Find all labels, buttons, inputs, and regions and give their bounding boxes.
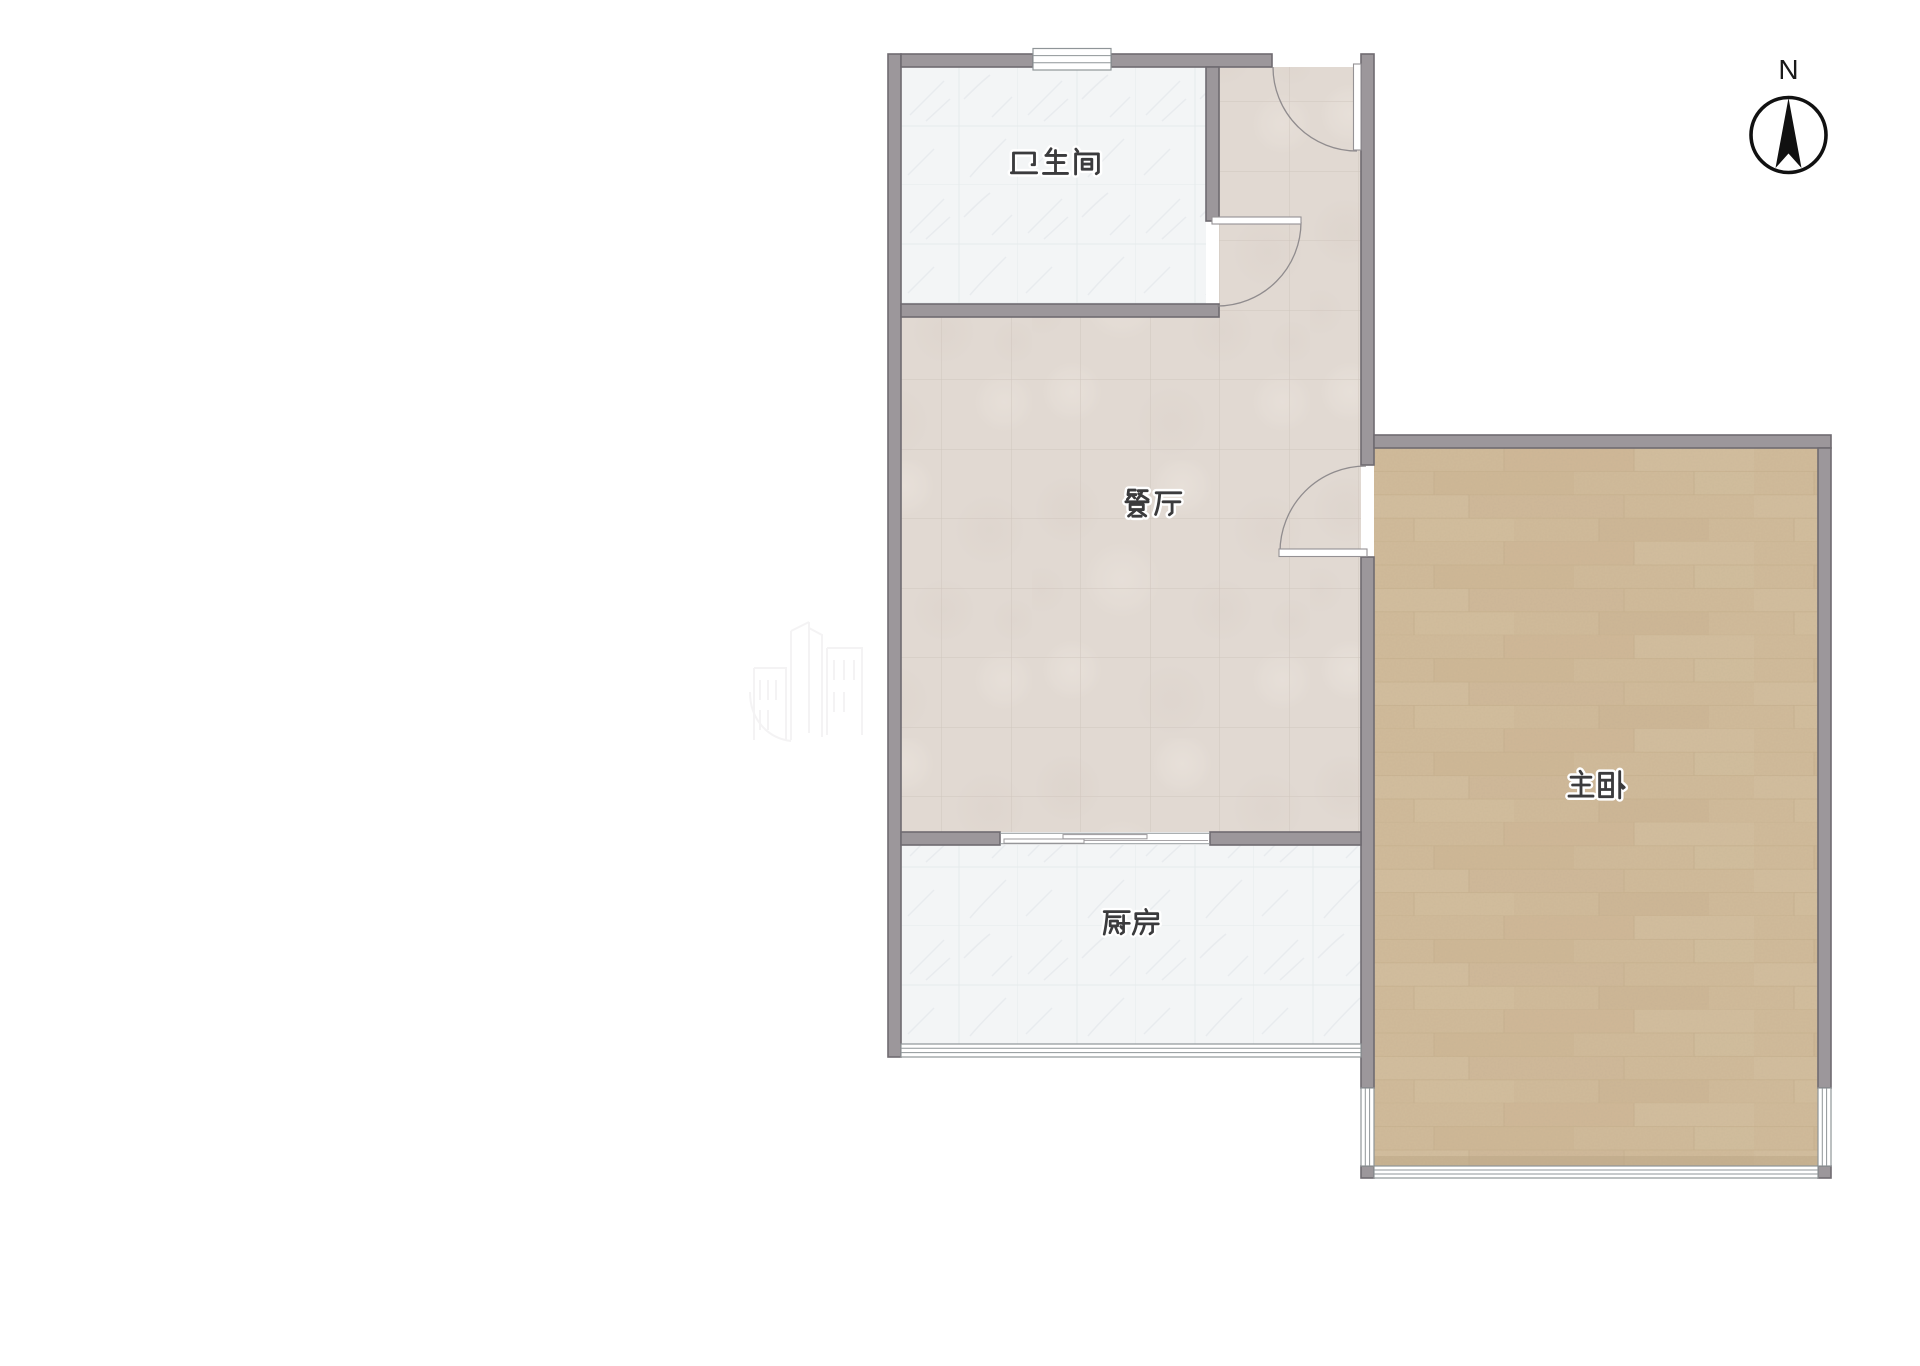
svg-text:N: N	[1778, 54, 1798, 85]
